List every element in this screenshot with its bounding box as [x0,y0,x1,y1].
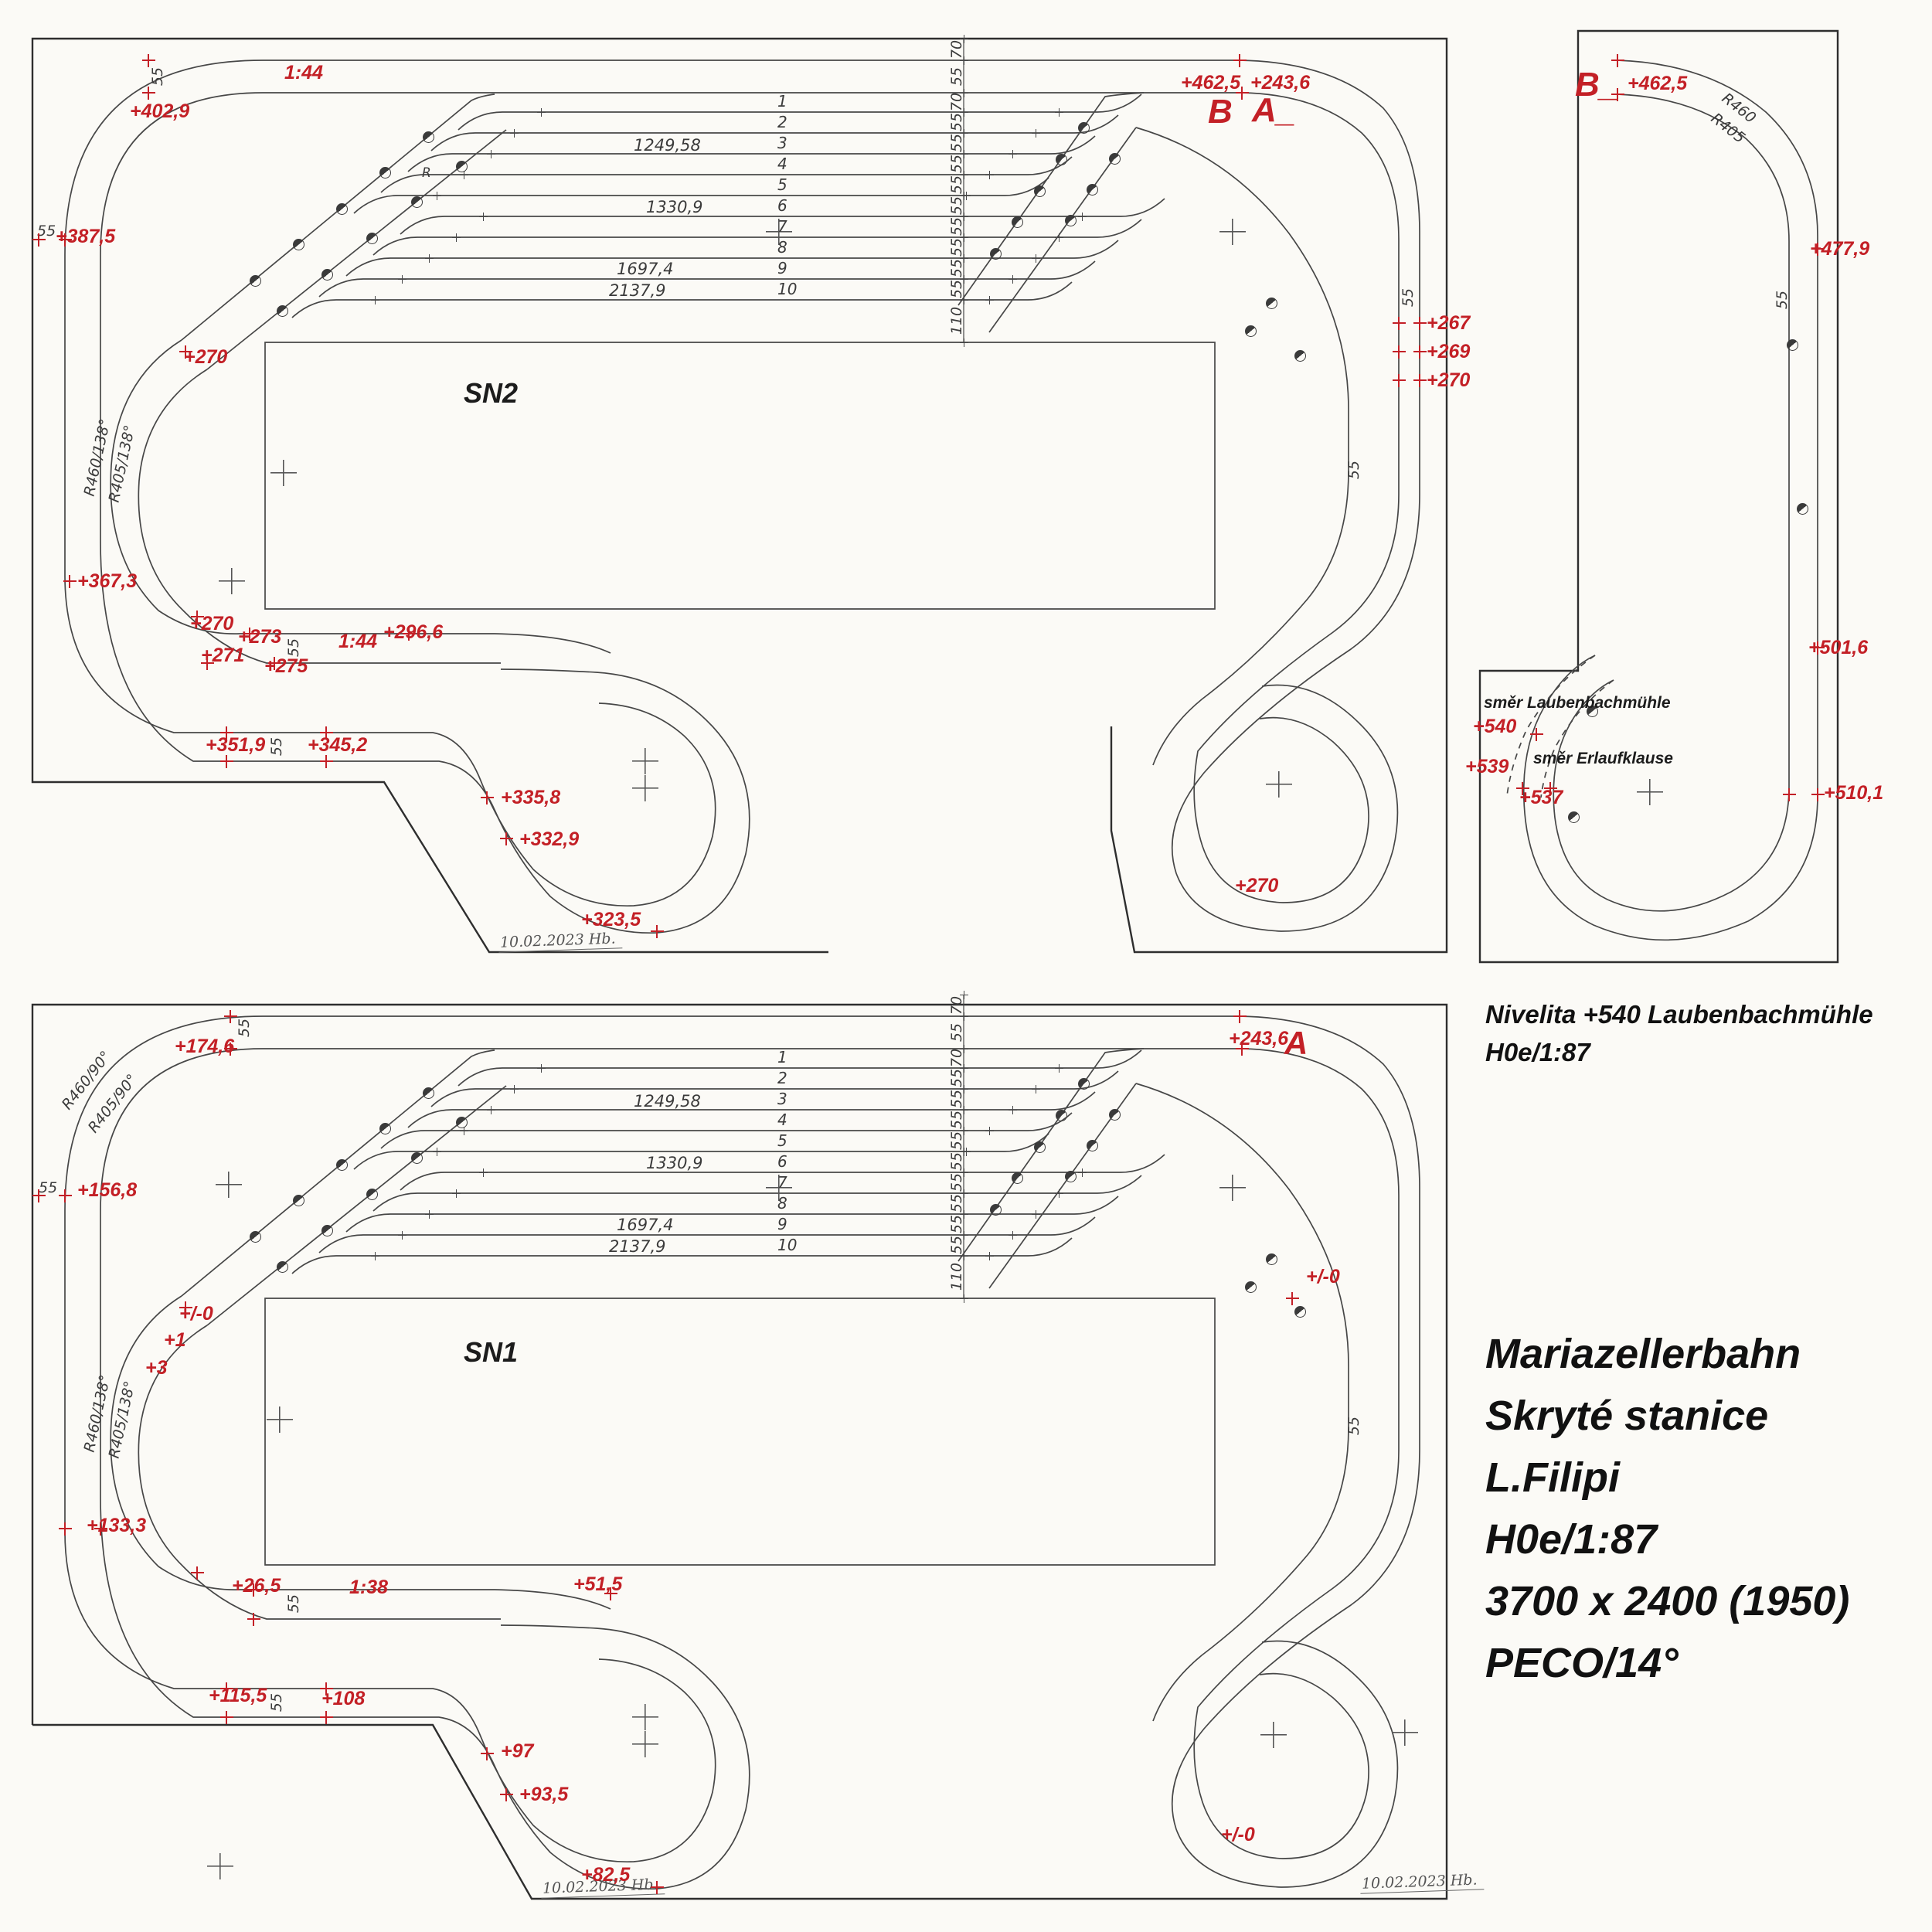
main-line [958,1049,1144,1261]
turnout-symbol [379,167,391,179]
elevation-label: +269 [1427,341,1470,363]
track-length-label: 1697,4 [617,1216,673,1234]
turnout-symbol [990,248,1002,260]
yard-track-east-lead [1028,1238,1072,1256]
elevation-label: +93,5 [519,1784,568,1806]
yard-track-east-lead [1121,1155,1165,1172]
elevation-tick [500,832,513,845]
turnout-symbol [423,1087,434,1099]
track-length-label: 1249,58 [634,136,701,155]
sn1-station-box [265,1298,1215,1565]
turnout-symbol [321,269,333,281]
dimension-label: 55 [948,1236,965,1254]
dimension-label: 55 [948,280,965,298]
track-number: 10 [777,1236,797,1254]
turnout-symbol [1568,811,1580,823]
track-length-label: 1330,9 [646,198,702,216]
track-length-label: 1330,9 [646,1154,702,1172]
clearance-tick [1009,1231,1017,1240]
direction-label: směr Laubenbachmühle [1484,694,1671,713]
note-line: H0e/1:87 [1485,1033,1873,1071]
yard-track-east-lead [1121,199,1165,216]
title-line-scale: H0e/1:87 [1485,1509,1849,1570]
turnout-symbol [1012,1172,1023,1184]
center-cross [1219,219,1246,245]
dimension-label: 55 [948,67,965,86]
track-number: 8 [777,1194,787,1213]
elevation-label: +351,9 [206,734,265,757]
track-number: 1 [777,92,787,111]
yard-track-west-lead [400,1172,444,1190]
yard-track-west-lead [408,1110,452,1128]
track-length-label: R [422,165,431,181]
elevation-tick [142,54,155,67]
dimension-label: 55 [948,175,965,194]
elevation-label: +462,5 [1181,72,1240,94]
main-line [1194,1049,1399,1859]
clearance-tick [1032,1085,1040,1094]
turnout-symbol [293,1195,304,1206]
dimension-label: 55 [948,1111,965,1129]
clearance-tick [487,1106,495,1114]
track-number: 9 [777,1215,787,1233]
elevation-tick [268,657,281,670]
turnout-symbol [379,1123,391,1134]
clearance-tick [1078,1168,1087,1177]
elevation-tick [59,1189,72,1202]
dimension-label: 55 [236,1019,253,1037]
clearance-tick [985,171,994,179]
turnout-symbol [990,1204,1002,1216]
dimension-label: 110 [948,307,965,335]
turnout-symbol [1109,153,1121,165]
elevation-tick [1611,54,1624,67]
dimension-label: 55 [948,155,965,173]
turnout-symbol [1034,1141,1046,1153]
turnout-symbol [1056,154,1067,165]
elevation-tick [247,1583,260,1597]
turnout-symbol [1245,1281,1257,1293]
elevation-label: +335,8 [501,787,560,809]
clearance-tick [985,296,994,304]
yard-track-west-lead [431,1089,475,1107]
clearance-tick [537,108,546,117]
turnout-symbol [321,1225,333,1236]
elevation-label: A_ [1252,91,1295,130]
elevation-label: +82,5 [581,1864,630,1886]
elevation-tick [1811,243,1825,256]
clearance-tick [398,1231,406,1240]
track-length-label: 2137,9 [609,1237,665,1256]
elevation-label: +/-0 [1221,1824,1255,1846]
main-line [958,93,1144,305]
sn1-station-label: SN1 [464,1336,518,1369]
center-cross [267,1406,293,1433]
turnout-symbol [1797,503,1808,515]
title-line-name: Mariazellerbahn [1485,1323,1849,1385]
elevation-tick [1413,345,1427,359]
clearance-tick [371,296,379,304]
elevation-tick [651,1881,664,1894]
track-number: 3 [777,1090,787,1108]
elevation-label: +3 [145,1357,168,1379]
track-length-label: 2137,9 [609,281,665,300]
yard-track-west-lead [346,258,390,276]
track-number: 4 [777,155,787,173]
title-line-author: L.Filipi [1485,1447,1849,1509]
clearance-tick [479,1168,488,1177]
elevation-tick [191,1566,204,1580]
turnout-symbol [1078,1078,1090,1090]
turnout-symbol [1294,1306,1306,1318]
dimension-label: 70 [948,40,965,59]
clearance-tick [1032,129,1040,138]
track-number: 7 [777,217,787,236]
turnout-symbol [1266,298,1277,309]
track-number: 7 [777,1173,787,1192]
dimension-label: 55 [268,1693,285,1712]
clearance-tick [433,192,441,200]
yard-track-east-lead [1051,1092,1095,1110]
turnout-symbol [277,1261,288,1273]
elevation-label: +462,5 [1628,73,1687,95]
track-length-label: 1697,4 [617,260,673,278]
dimension-label: 70 [948,996,965,1015]
direction-dashed-line [1507,655,1595,796]
turnout-symbol [366,233,378,244]
clearance-tick [1055,108,1063,117]
elevation-tick [1233,54,1247,67]
yard-track-east-lead [1074,1196,1118,1214]
track-number: 8 [777,238,787,257]
loop-panel-outer-track [1524,60,1818,940]
clearance-tick [985,1127,994,1135]
turnout-symbol [411,1152,423,1164]
elevation-tick [1516,782,1529,795]
yard-track-west-lead [458,112,502,130]
main-line [1172,1016,1420,1887]
elevation-label: 1:38 [349,1577,388,1599]
yard-track-east-lead [1051,261,1095,279]
dimension-label: 55 [948,1069,965,1087]
clearance-tick [985,1252,994,1260]
elevation-tick [320,726,333,740]
turnout-symbol [1034,185,1046,197]
elevation-label: +270 [1427,369,1470,392]
elevation-tick [1393,374,1406,387]
elevation-tick [247,1613,260,1626]
yard-track-west-lead [373,237,417,255]
yard-track-east-lead [1097,1175,1141,1193]
elevation-tick [179,1301,192,1315]
dimension-label: 110 [948,1263,965,1291]
elevation-tick [32,233,46,247]
clearance-tick [1055,233,1063,242]
elevation-label: +323,5 [581,909,641,931]
yard-track-east-lead [1051,136,1095,154]
main-line [1172,60,1420,931]
elevation-tick [1413,317,1427,330]
yard-track-east-lead [1097,1050,1141,1068]
dimension-label: 55 [948,1173,965,1192]
yard-track-west-lead [292,300,336,318]
sn2-panel-border [32,39,1447,952]
turnout-symbol [1012,216,1023,228]
elevation-tick [481,1747,494,1760]
yard-track-west-lead [373,1193,417,1211]
yard-track-east-lead [1028,282,1072,300]
ladder-tick [960,1294,968,1303]
clearance-tick [1032,254,1040,263]
center-cross [1260,1722,1287,1748]
turnout-symbol [1078,122,1090,134]
turnout-symbol [277,305,288,317]
clearance-tick [1032,1210,1040,1219]
turnout-symbol [1294,350,1306,362]
dimension-label: 55 [285,638,302,657]
track-length-label: 1249,58 [634,1092,701,1111]
elevation-label: +402,9 [130,100,189,123]
turnout-symbol [456,1117,468,1128]
turnout-symbol [1065,1171,1077,1182]
loop-panel-border [1480,31,1838,962]
track-number: 2 [777,1069,787,1087]
track-number: 9 [777,259,787,277]
dimension-label: 55 [948,238,965,257]
clearance-tick [479,213,488,221]
dimension-label: 55 [268,737,285,756]
sn2-station-box [265,342,1215,609]
elevation-label: +97 [501,1740,533,1763]
turnout-symbol [1787,339,1798,351]
elevation-tick [142,87,155,100]
center-cross [1219,1175,1246,1201]
yard-track-east-lead [1074,240,1118,258]
track-number: 1 [777,1048,787,1066]
dimension-label: 55 [948,113,965,131]
elevation-tick [220,1682,233,1696]
elevation-tick [320,1711,333,1724]
elevation-tick [1233,1010,1247,1023]
track-number: 10 [777,280,797,298]
dimension-label: 70 [948,93,965,111]
level-note: Nivelita +540 Laubenbachmühle H0e/1:87 [1485,995,1873,1071]
center-cross [632,748,658,774]
center-cross [632,1704,658,1730]
center-cross [219,568,245,594]
turnout-symbol [250,1231,261,1243]
elevation-tick [179,345,192,359]
elevation-tick [63,575,77,588]
elevation-label: 1:44 [284,62,323,84]
turnout-symbol [1245,325,1257,337]
elevation-label: +267 [1427,312,1470,335]
clearance-tick [487,150,495,158]
clearance-tick [1009,1106,1017,1114]
elevation-tick [1286,1292,1299,1305]
title-block: Mariazellerbahn Skryté stanice L.Filipi … [1485,1323,1849,1694]
elevation-label: +510,1 [1824,782,1883,804]
sn2-station-label: SN2 [464,377,518,410]
elevation-tick [32,1189,46,1202]
elevation-label: +1 [164,1329,186,1352]
clearance-tick [1055,1064,1063,1073]
yard-track-east-lead [1097,219,1141,237]
clearance-tick [452,1189,461,1198]
generated-trackwork [65,60,1420,1889]
dimension-label: 55 [948,1194,965,1213]
clearance-tick [537,1064,546,1073]
dimension-label: 55 [948,1131,965,1150]
elevation-tick [224,1043,237,1056]
elevation-tick [651,925,664,938]
elevation-tick [320,1682,333,1696]
main-line [1194,93,1399,903]
loop-panel-inner-track [1553,94,1789,911]
elevation-tick [59,233,72,247]
elevation-label: +115,5 [209,1685,267,1707]
turnout-symbol [423,131,434,143]
elevation-label: +540 [1473,716,1516,738]
clearance-tick [1009,150,1017,158]
elevation-tick [1236,87,1249,100]
elevation-tick [220,726,233,740]
dimension-label: 55 [948,1090,965,1108]
turnout-symbol [336,203,348,215]
yard-track-west-lead [431,133,475,151]
clearance-tick [425,1210,434,1219]
elevation-tick [500,1788,513,1801]
elevation-tick [1393,345,1406,359]
elevation-tick [604,1587,617,1600]
dimension-label: 55 [948,1152,965,1171]
elevation-label: +367,3 [77,570,137,593]
dimension-label: 55 [948,134,965,152]
main-line [182,94,495,340]
elevation-tick [1236,1043,1249,1056]
elevation-tick [1530,728,1543,741]
elevation-label: 1:44 [338,631,377,653]
elevation-tick [59,1522,72,1536]
center-cross [207,1853,233,1879]
elevation-tick [1544,782,1557,795]
yard-track-west-lead [354,1151,398,1169]
elevation-label: A [1284,1025,1308,1062]
dimension-label: 55 [948,1023,965,1042]
elevation-tick [1611,88,1624,101]
dimension-label: 55 [149,67,166,86]
dimension-label: 55 [948,217,965,236]
dimension-label: 55 [1774,291,1791,309]
track-number: 6 [777,196,787,215]
title-line-track-system: PECO/14° [1485,1632,1849,1694]
main-line [111,340,611,653]
elevation-label: B [1208,93,1233,131]
dimension-label: 55 [948,259,965,277]
elevation-tick [243,628,257,641]
center-cross [632,775,658,801]
turnout-symbol [1109,1109,1121,1121]
dimension-label: 55 [948,1215,965,1233]
title-line-subtitle: Skryté stanice [1485,1385,1849,1447]
elevation-tick [1811,788,1825,801]
center-cross [270,460,297,486]
elevation-tick [191,611,204,624]
elevation-tick [320,755,333,768]
dimension-label: 70 [948,1049,965,1067]
center-cross [1266,771,1292,798]
turnout-symbol [366,1189,378,1200]
yard-track-west-lead [400,216,444,234]
track-plan-sheet: 1234567891012345678910+402,91:44+387,5+2… [0,0,1932,1932]
clearance-tick [1078,213,1087,221]
elevation-label: +270 [1235,875,1278,897]
turnout-symbol [456,161,468,172]
clearance-tick [371,1252,379,1260]
elevation-tick [481,791,494,804]
turnout-symbol [1266,1253,1277,1265]
clearance-tick [425,254,434,263]
title-line-size: 3700 x 2400 (1950) [1485,1570,1849,1632]
elevation-tick [201,657,214,670]
turnout-symbol [336,1159,348,1171]
dimension-label: 55 [1345,1417,1362,1435]
turnout-symbol [293,239,304,250]
turnout-symbol [1056,1110,1067,1121]
dimension-label: 55 [285,1594,302,1613]
turnout-symbol [250,275,261,287]
center-cross [632,1731,658,1757]
turnout-symbol [1087,184,1098,196]
clearance-tick [1055,1189,1063,1198]
note-line: Nivelita +540 Laubenbachmühle [1485,995,1873,1033]
center-cross [216,1172,242,1198]
clearance-tick [510,1085,519,1094]
elevation-tick [220,755,233,768]
elevation-tick [94,1522,107,1536]
track-number: 4 [777,1111,787,1129]
dimension-label: 55 [1345,461,1362,479]
track-number: 2 [777,113,787,131]
dimension-label: 55 [948,196,965,215]
ladder-tick [960,338,968,347]
track-number: 5 [777,175,787,194]
elevation-label: +332,9 [519,828,579,851]
center-cross [1392,1719,1418,1746]
yard-track-west-lead [319,279,363,297]
elevation-label: +156,8 [77,1179,137,1202]
yard-track-west-lead [292,1256,336,1274]
elevation-tick [1413,374,1427,387]
sn1-panel-border [32,1005,1447,1899]
center-cross [1637,779,1663,805]
yard-track-west-lead [319,1235,363,1253]
elevation-tick [224,1010,237,1023]
yard-track-west-lead [346,1214,390,1232]
track-number: 3 [777,134,787,152]
elevation-label: +539 [1465,756,1509,778]
direction-label: směr Erlaufklause [1533,750,1673,768]
elevation-tick [1811,641,1825,655]
turnout-symbol [1065,215,1077,226]
elevation-tick [220,1711,233,1724]
clearance-tick [433,1148,441,1156]
elevation-tick [403,628,416,641]
elevation-tick [1783,788,1796,801]
clearance-tick [398,275,406,284]
clearance-tick [452,233,461,242]
track-number: 6 [777,1152,787,1171]
